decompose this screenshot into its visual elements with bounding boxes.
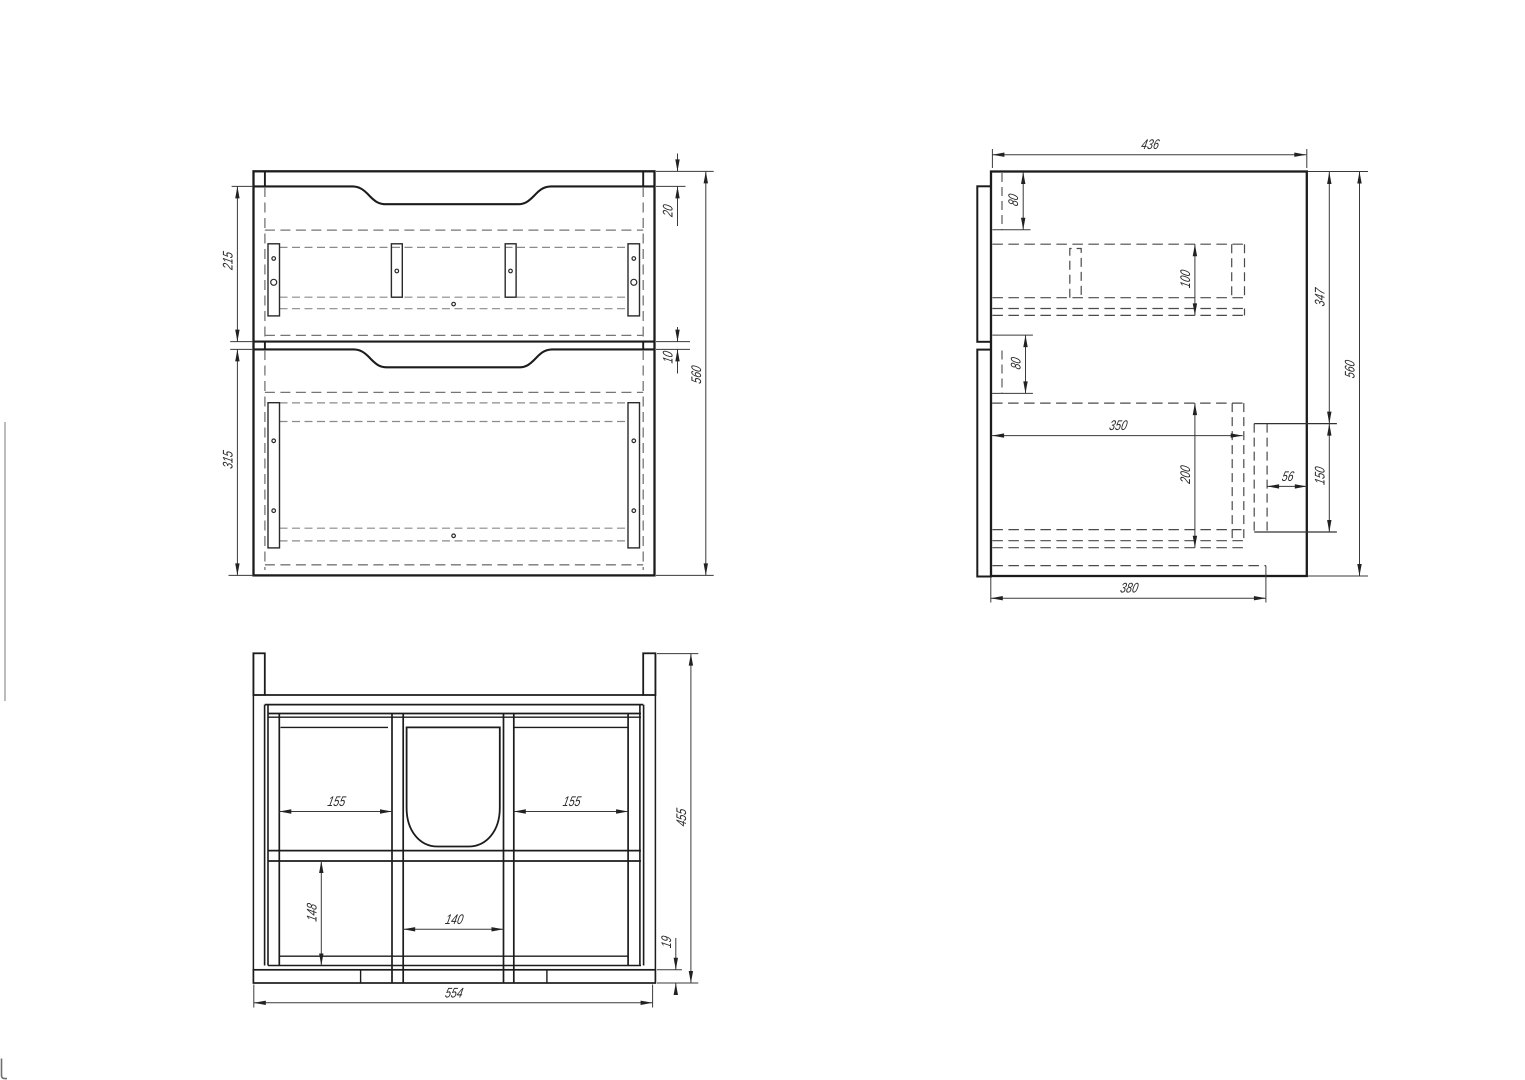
svg-text:560: 560 [1342,358,1358,379]
svg-text:155: 155 [562,793,583,809]
svg-text:150: 150 [1311,465,1327,486]
svg-text:155: 155 [326,793,347,809]
svg-text:315: 315 [220,449,236,470]
svg-text:100: 100 [1177,268,1193,289]
svg-text:455: 455 [673,807,689,828]
svg-text:380: 380 [1119,580,1140,596]
svg-text:148: 148 [303,902,319,923]
svg-text:215: 215 [220,250,236,272]
svg-text:200: 200 [1177,464,1193,486]
svg-text:436: 436 [1140,136,1161,152]
svg-text:554: 554 [444,984,465,1000]
svg-text:350: 350 [1108,417,1129,433]
svg-text:560: 560 [688,364,704,385]
svg-text:140: 140 [444,911,465,927]
